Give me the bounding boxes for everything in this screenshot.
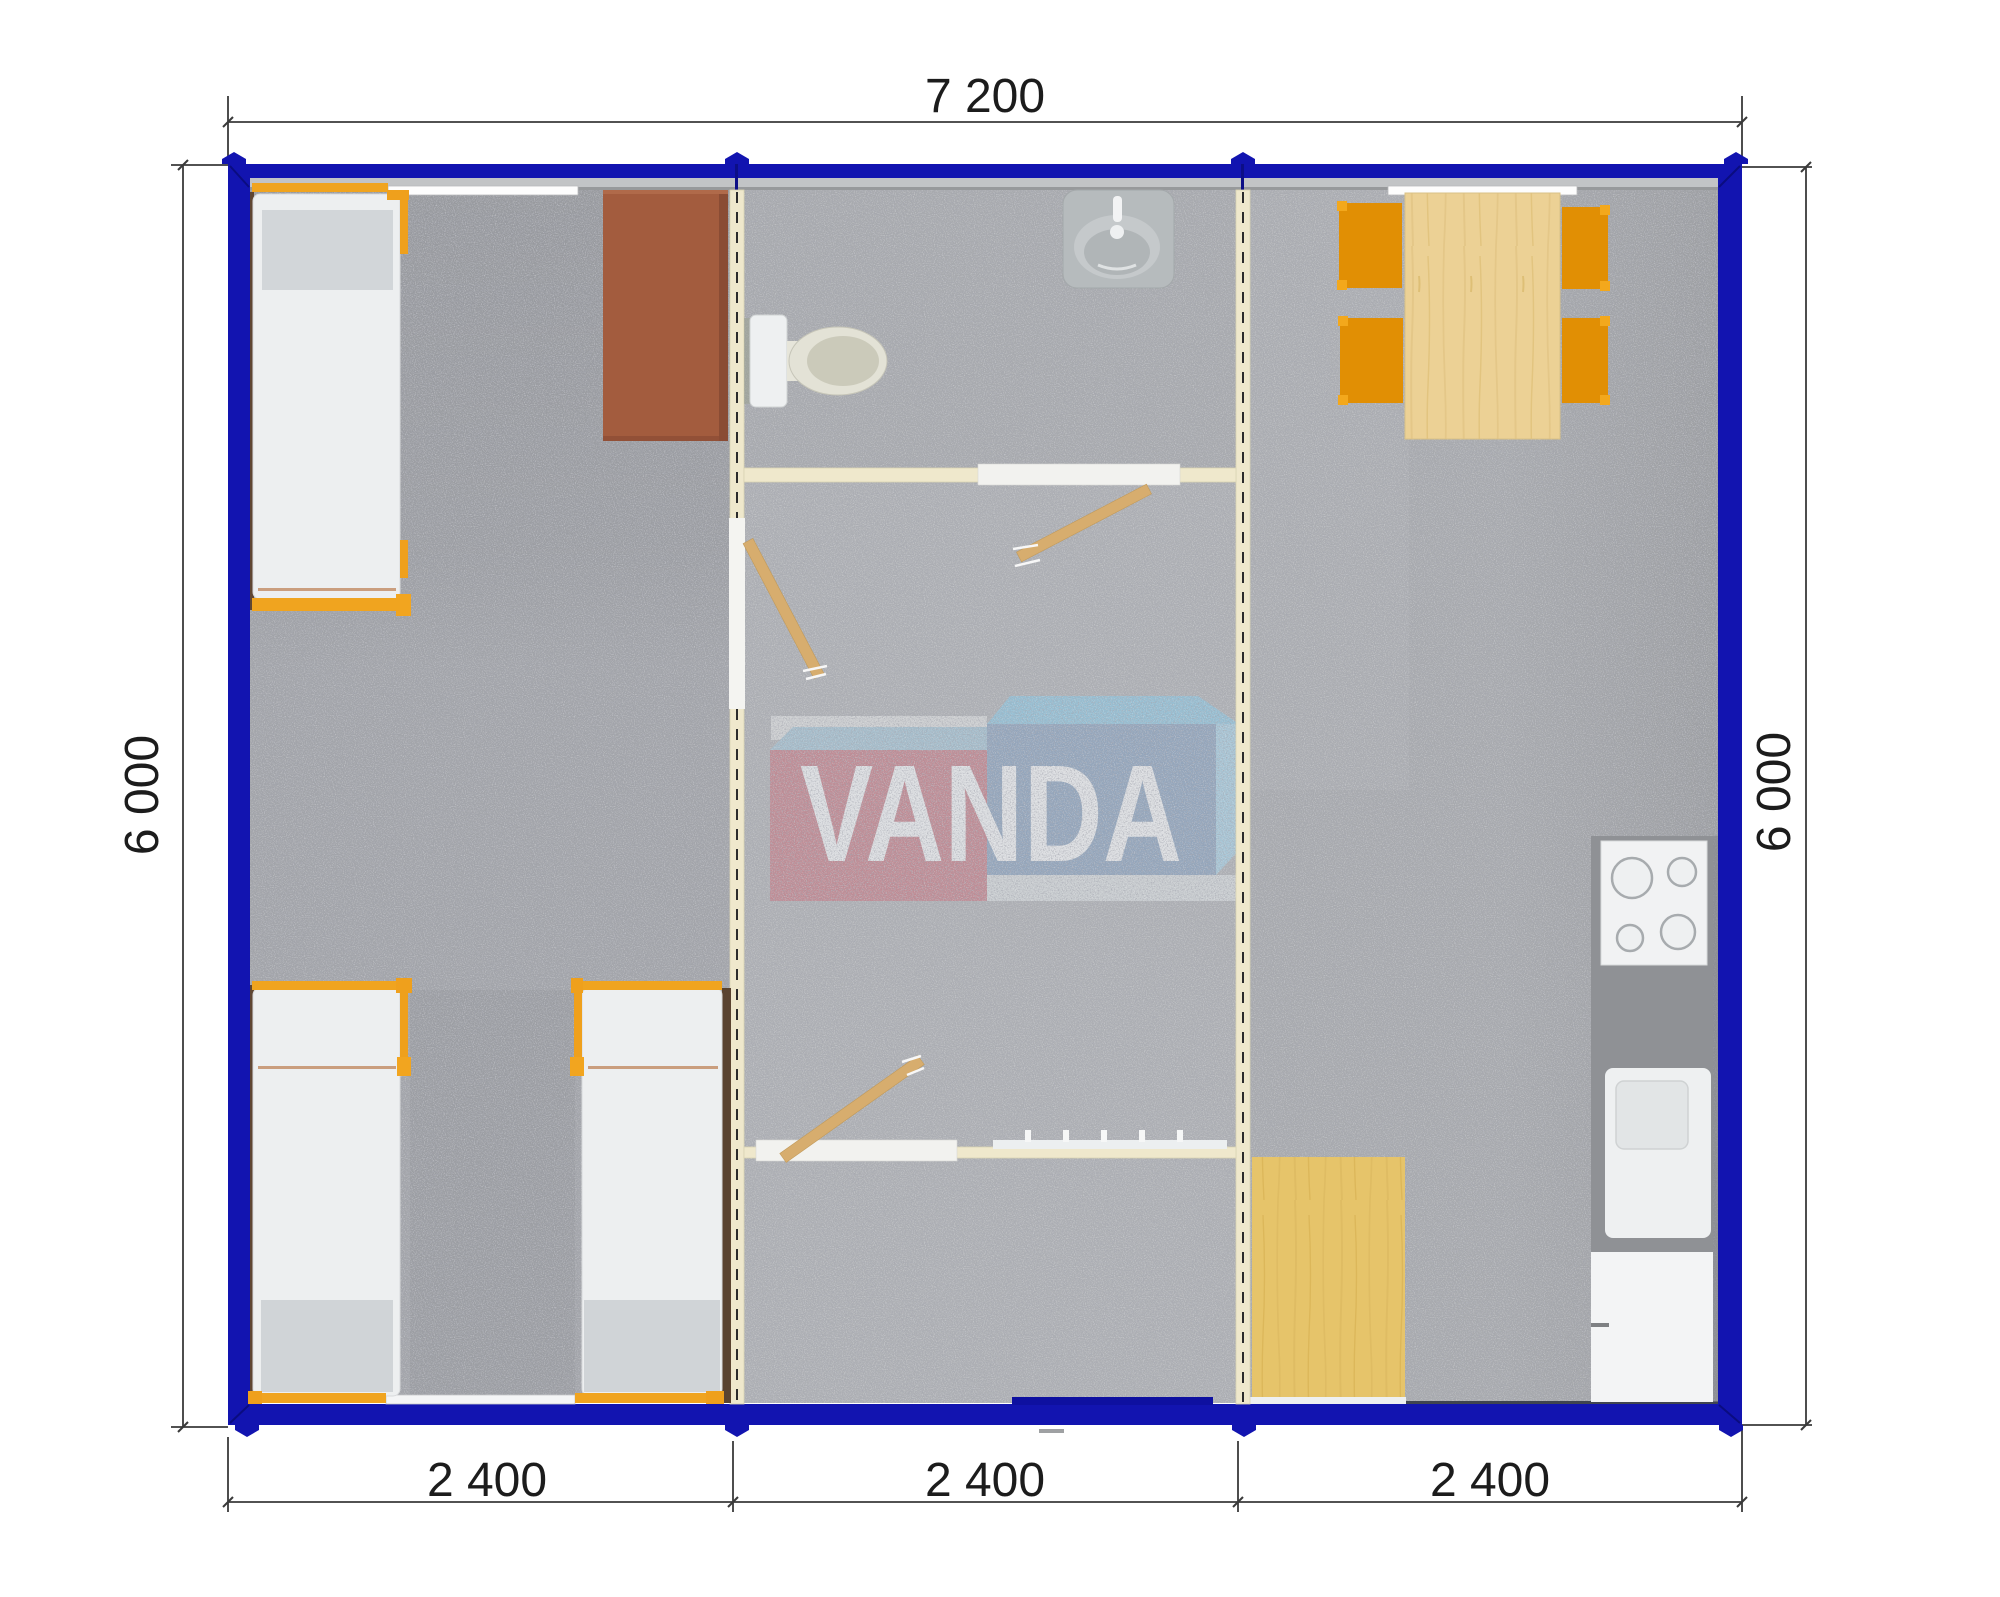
svg-text:6 000: 6 000: [116, 735, 169, 855]
svg-text:7 200: 7 200: [925, 70, 1045, 123]
svg-text:2 400: 2 400: [1430, 1454, 1550, 1507]
svg-text:2 400: 2 400: [427, 1454, 547, 1507]
svg-text:6 000: 6 000: [1748, 732, 1801, 852]
svg-text:2 400: 2 400: [925, 1454, 1045, 1507]
